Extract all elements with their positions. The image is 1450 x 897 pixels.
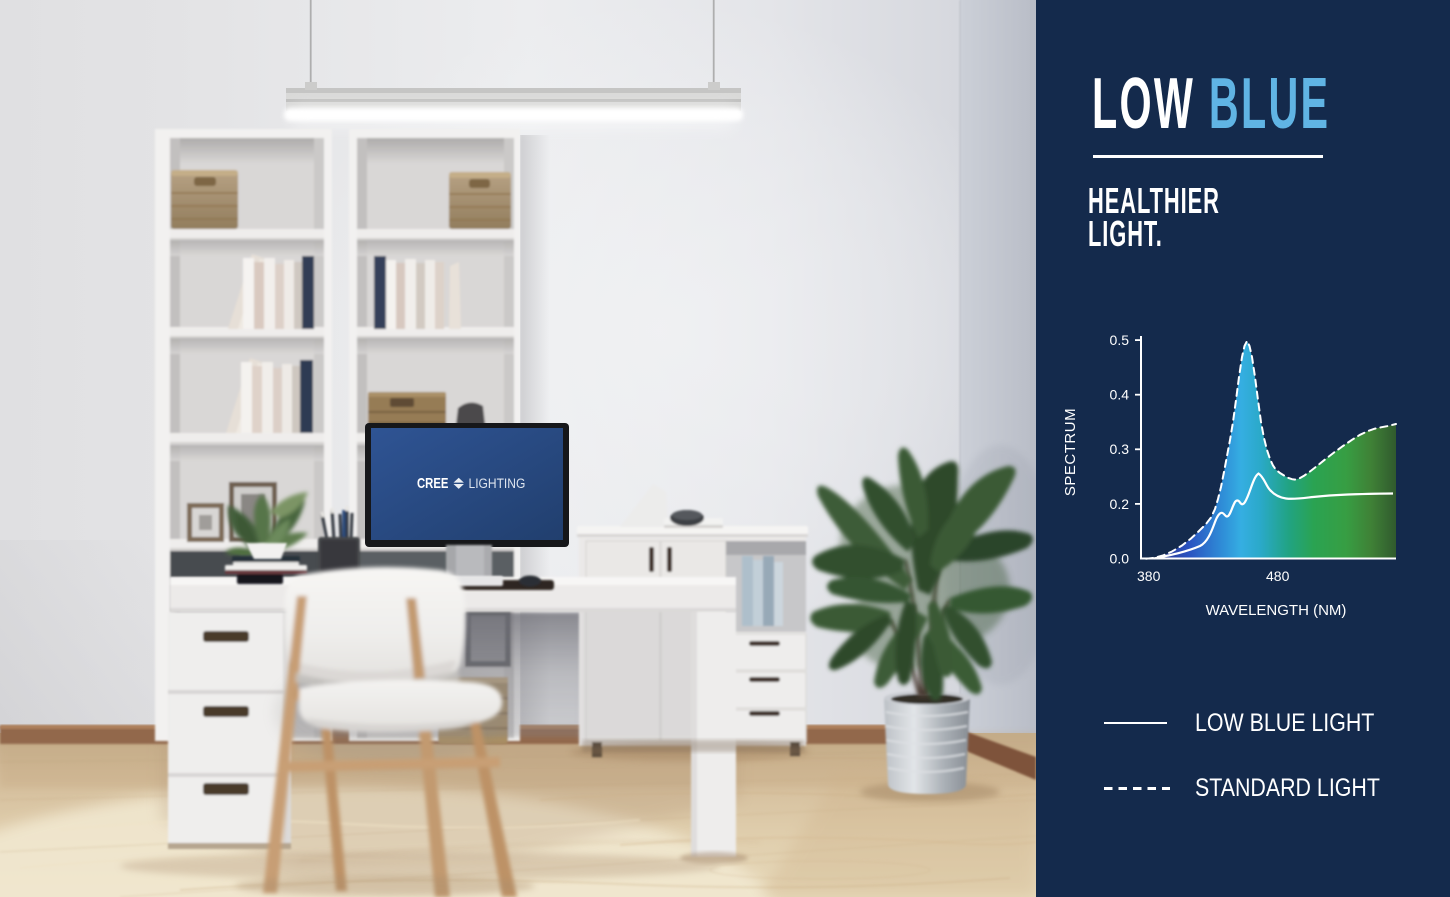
svg-text:480: 480: [1266, 568, 1290, 584]
svg-text:0.4: 0.4: [1110, 387, 1130, 403]
svg-text:0.2: 0.2: [1110, 496, 1130, 512]
svg-text:CREE: CREE: [417, 475, 449, 492]
svg-text:380: 380: [1137, 568, 1161, 584]
svg-text:WAVELENGTH (NM): WAVELENGTH (NM): [1206, 602, 1347, 619]
svg-text:0.0: 0.0: [1110, 551, 1130, 567]
svg-text:0.3: 0.3: [1110, 441, 1130, 457]
svg-text:0.5: 0.5: [1110, 332, 1130, 348]
svg-text:SPECTRUM: SPECTRUM: [1062, 408, 1079, 496]
svg-text:LIGHTING: LIGHTING: [469, 475, 526, 491]
